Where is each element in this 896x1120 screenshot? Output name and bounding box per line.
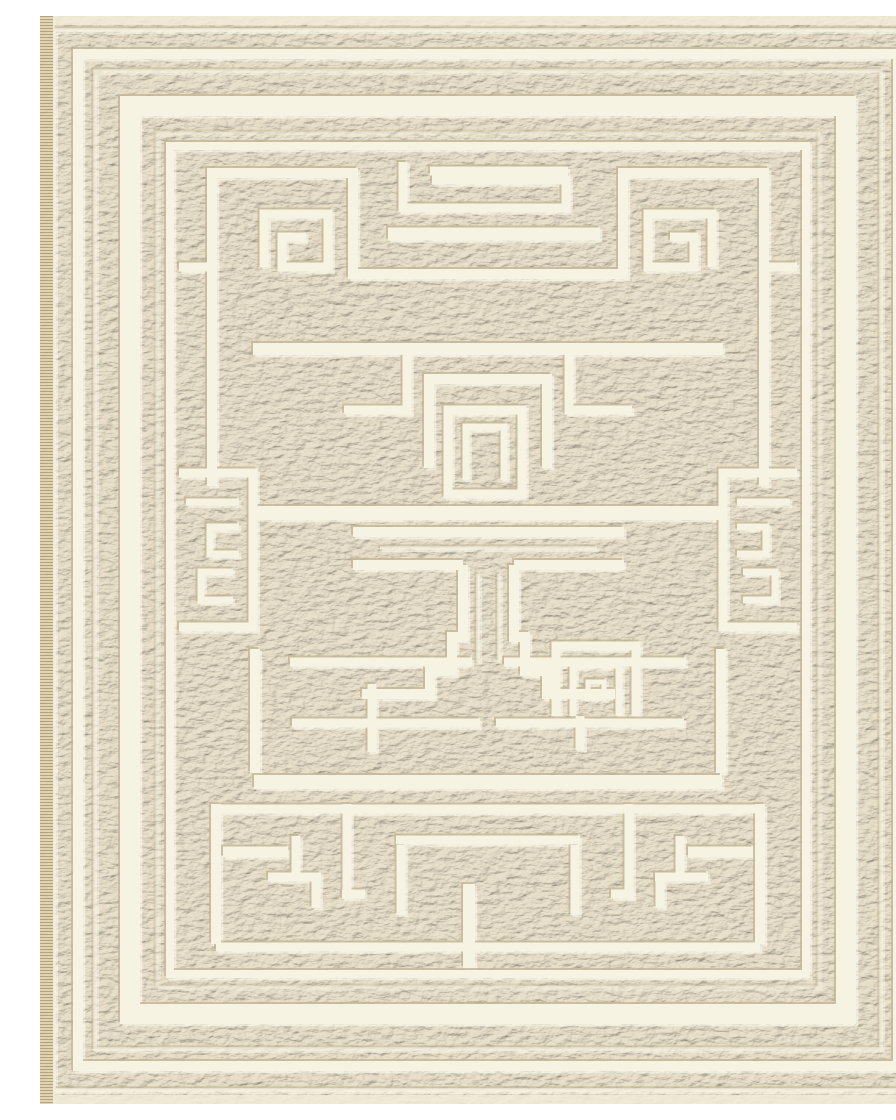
rug-product-photo [40, 16, 896, 1104]
rug-pattern-graphic [40, 16, 896, 1104]
rug-bound-edge-bottom [40, 1095, 896, 1104]
rug-bound-edge-top [40, 16, 896, 25]
rug-selvedge-fringe-left [40, 16, 55, 1104]
